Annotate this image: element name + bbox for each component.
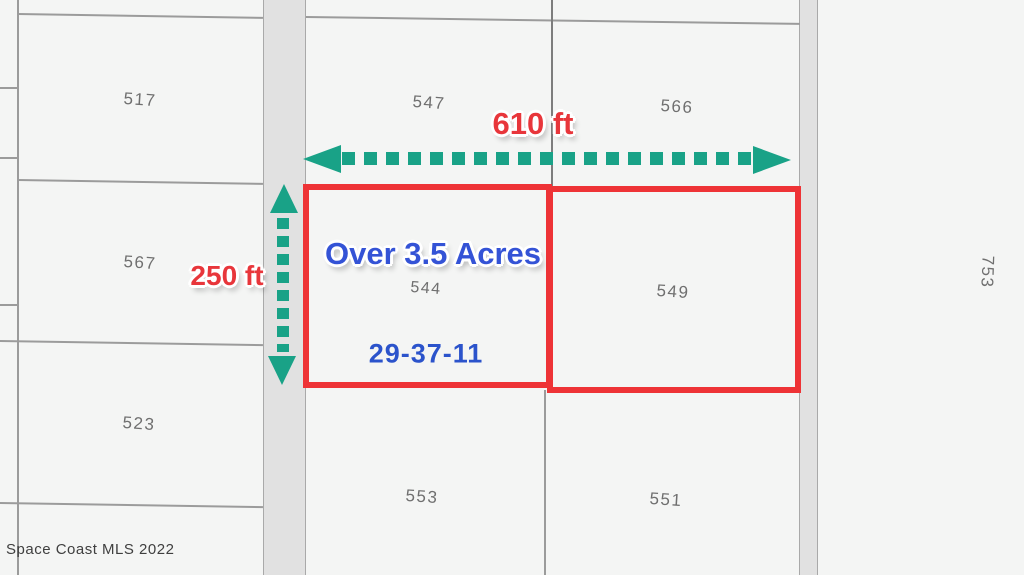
parcel-boundary-line	[0, 87, 17, 89]
parcel-label-544: 544	[410, 279, 442, 299]
acreage-label: Over 3.5 Acres	[325, 236, 541, 272]
road-strip-right	[799, 0, 818, 575]
arrowhead-down-icon	[268, 356, 296, 385]
parcel-boundary-line	[0, 157, 17, 159]
watermark: Space Coast MLS 2022	[6, 541, 174, 558]
parcel-boundary-line	[17, 0, 19, 575]
dotted-line	[277, 218, 289, 352]
dotted-line	[342, 152, 752, 165]
parcel-boundary-line	[0, 502, 263, 508]
parcel-boundary-line	[0, 304, 17, 306]
parcel-boundary-line	[544, 390, 546, 575]
parcel-boundary-line	[18, 179, 263, 185]
section-township-range-label: 29-37-11	[369, 339, 484, 370]
arrowhead-right-icon	[753, 146, 791, 174]
width-dimension-label: 610 ft	[493, 106, 574, 142]
parcel-label-553: 553	[405, 486, 439, 508]
parcel-label-753: 753	[976, 255, 997, 289]
height-dimension-label: 250 ft	[190, 260, 263, 292]
parcel-label-517: 517	[123, 89, 157, 111]
parcel-boundary-line	[0, 340, 263, 346]
arrowhead-up-icon	[270, 184, 298, 213]
parcel-label-549: 549	[656, 281, 690, 303]
parcel-label-567: 567	[123, 252, 157, 274]
plat-map: 610 ft 250 ft Over 3.5 Acres 29-37-11 51…	[0, 0, 1024, 575]
parcel-label-566: 566	[660, 96, 694, 118]
parcel-label-547: 547	[412, 92, 446, 114]
parcel-label-523: 523	[122, 413, 156, 435]
parcel-label-551: 551	[649, 489, 683, 511]
arrowhead-left-icon	[303, 145, 341, 173]
parcel-boundary-line	[18, 13, 263, 19]
